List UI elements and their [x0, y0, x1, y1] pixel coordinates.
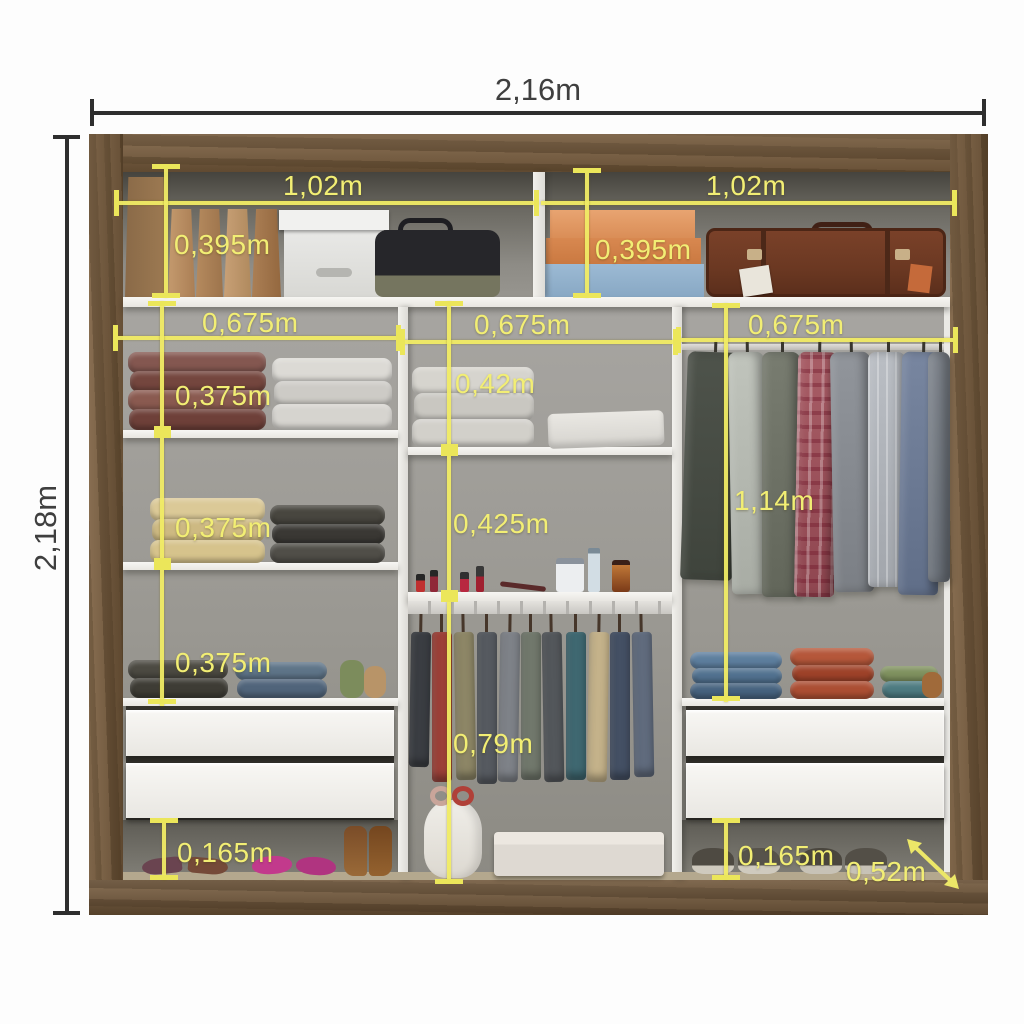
dim-tick — [113, 325, 118, 351]
dim-label-top-left-height: 0,395m — [174, 229, 270, 261]
folded-clothes-rust — [790, 681, 874, 699]
dim-tick — [400, 329, 405, 355]
wardrobe-top-rail — [89, 134, 988, 172]
dim-tick — [712, 303, 740, 308]
dim-label-middle-upper: 0,42m — [455, 368, 535, 400]
suitcase-clasp — [747, 249, 762, 260]
dim-line-left-sections — [160, 302, 164, 706]
hanging-pants — [610, 632, 630, 780]
dim-tick — [712, 696, 740, 701]
dim-label-middle-lower: 0,425m — [453, 508, 549, 540]
nail-polish — [430, 570, 438, 592]
dim-label-overall-height: 2,18m — [28, 468, 64, 588]
dim-tick — [435, 879, 463, 884]
dim-label-right-col-width: 0,675m — [748, 309, 844, 341]
folded-towel-white — [272, 358, 392, 383]
perfume-bottle — [556, 558, 584, 592]
dim-tick — [435, 301, 463, 306]
dim-line-left-shoe-space — [162, 820, 166, 880]
depth-arrow-icon — [902, 836, 964, 894]
photo-on-suitcase — [739, 265, 773, 297]
dim-label-top-left-width: 1,02m — [283, 170, 363, 202]
nail-polish — [460, 572, 469, 592]
dim-label-top-right-width: 1,02m — [706, 170, 786, 202]
perfume-bottle — [588, 548, 600, 592]
wardrobe-dimension-diagram: 2,16m 2,18m — [0, 0, 1024, 1024]
dim-label-right-shoe-space: 0,165m — [738, 840, 834, 872]
storage-box — [284, 228, 384, 297]
folded-towel-white — [412, 419, 534, 447]
folded-shirt — [547, 410, 664, 449]
box-handle-slot — [316, 268, 352, 277]
folded-jeans — [692, 668, 782, 684]
left-drawer-bottom — [126, 763, 394, 818]
dim-line-top-right-height — [585, 169, 589, 297]
folded-towel-white — [272, 404, 392, 430]
dim-tick — [676, 327, 681, 353]
dim-label-left-col-width: 0,675m — [202, 307, 298, 339]
dim-tick — [90, 99, 94, 126]
left-drawer-top — [126, 710, 394, 756]
dim-tick — [952, 190, 957, 216]
stacked-box-blue — [544, 264, 704, 297]
hanging-pants — [542, 632, 565, 782]
wardrobe-left-side — [89, 134, 123, 915]
dim-tick — [148, 301, 176, 306]
dim-tick — [53, 135, 80, 139]
boot — [344, 826, 367, 876]
handbag-handle — [452, 786, 474, 806]
dim-line-overall-width — [92, 111, 984, 115]
rolled-towel — [340, 660, 364, 698]
storage-box-floor — [494, 832, 664, 876]
dim-line-top-left-height — [164, 165, 168, 297]
dim-tick — [150, 818, 178, 823]
dim-line-overall-height — [65, 137, 69, 915]
dim-tick — [114, 190, 119, 216]
folded-clothes-rust — [790, 648, 874, 666]
suitcase-sticker — [907, 264, 932, 293]
perfume-bottle-amber — [612, 560, 630, 592]
dim-label-middle-hanging: 0,79m — [453, 728, 533, 760]
dim-tick — [441, 590, 458, 602]
top-shelf-board — [123, 297, 950, 307]
nail-polish — [416, 574, 425, 592]
dim-tick — [982, 99, 986, 126]
dim-tick — [152, 293, 180, 298]
dim-tick — [573, 168, 601, 173]
dim-tick — [152, 164, 180, 169]
storage-box-lid — [279, 210, 389, 230]
right-drawer-bottom — [686, 763, 944, 818]
dim-tick — [150, 875, 178, 880]
hanging-pants — [587, 632, 610, 782]
dim-label-overall-width: 2,16m — [468, 72, 608, 108]
dim-tick — [441, 444, 458, 456]
dim-tick — [154, 558, 171, 570]
suitcase-strap — [885, 231, 890, 294]
dim-label-right-hanging: 1,14m — [734, 485, 814, 517]
dim-label-left-shoe-space: 0,165m — [177, 837, 273, 869]
dim-line-right-hanging — [724, 304, 728, 702]
dim-tick — [154, 426, 171, 438]
folded-clothes-rust — [792, 665, 874, 682]
lipstick — [476, 566, 484, 592]
hanging-pants — [566, 632, 586, 780]
boot — [369, 826, 392, 876]
wardrobe-right-side — [950, 134, 988, 915]
dim-tick — [148, 699, 176, 704]
dim-label-left-section2: 0,375m — [175, 512, 271, 544]
folded-jeans — [237, 679, 327, 698]
folded-towel — [129, 409, 266, 430]
dim-tick — [534, 190, 539, 216]
clothes-rod — [682, 344, 944, 350]
dim-tick — [712, 818, 740, 823]
hanging-pants — [632, 632, 655, 777]
folded-clothes-dark — [270, 543, 385, 563]
folded-towel-white — [274, 381, 392, 406]
hanging-pants — [477, 632, 497, 784]
dim-label-mid-col-width: 0,675m — [474, 309, 570, 341]
dim-tick — [573, 293, 601, 298]
rolled-towel — [364, 666, 386, 698]
paper-bag — [125, 177, 167, 297]
folded-towel — [128, 352, 266, 373]
dim-line-right-shoe-space — [724, 820, 728, 880]
folded-clothes-dark — [272, 524, 385, 544]
hanging-shirt — [928, 352, 950, 582]
handbag — [424, 800, 482, 878]
suitcase — [706, 228, 946, 297]
dim-label-top-right-height: 0,395m — [595, 234, 691, 266]
camera-bag — [375, 230, 500, 297]
dim-label-left-section3: 0,375m — [175, 647, 271, 679]
dim-tick — [712, 875, 740, 880]
suitcase-clasp — [895, 249, 910, 260]
column-divider-left — [398, 307, 408, 880]
folded-jeans — [690, 652, 782, 669]
column-divider-right — [672, 307, 682, 880]
dim-tick — [953, 327, 958, 353]
right-drawer-top — [686, 710, 944, 756]
hanging-pants — [409, 632, 431, 767]
folded-clothes-dark — [130, 678, 228, 698]
rolled-towel — [922, 672, 942, 698]
folded-clothes-dark — [270, 505, 385, 525]
dim-label-left-section1: 0,375m — [175, 380, 271, 412]
dim-tick — [53, 911, 80, 915]
